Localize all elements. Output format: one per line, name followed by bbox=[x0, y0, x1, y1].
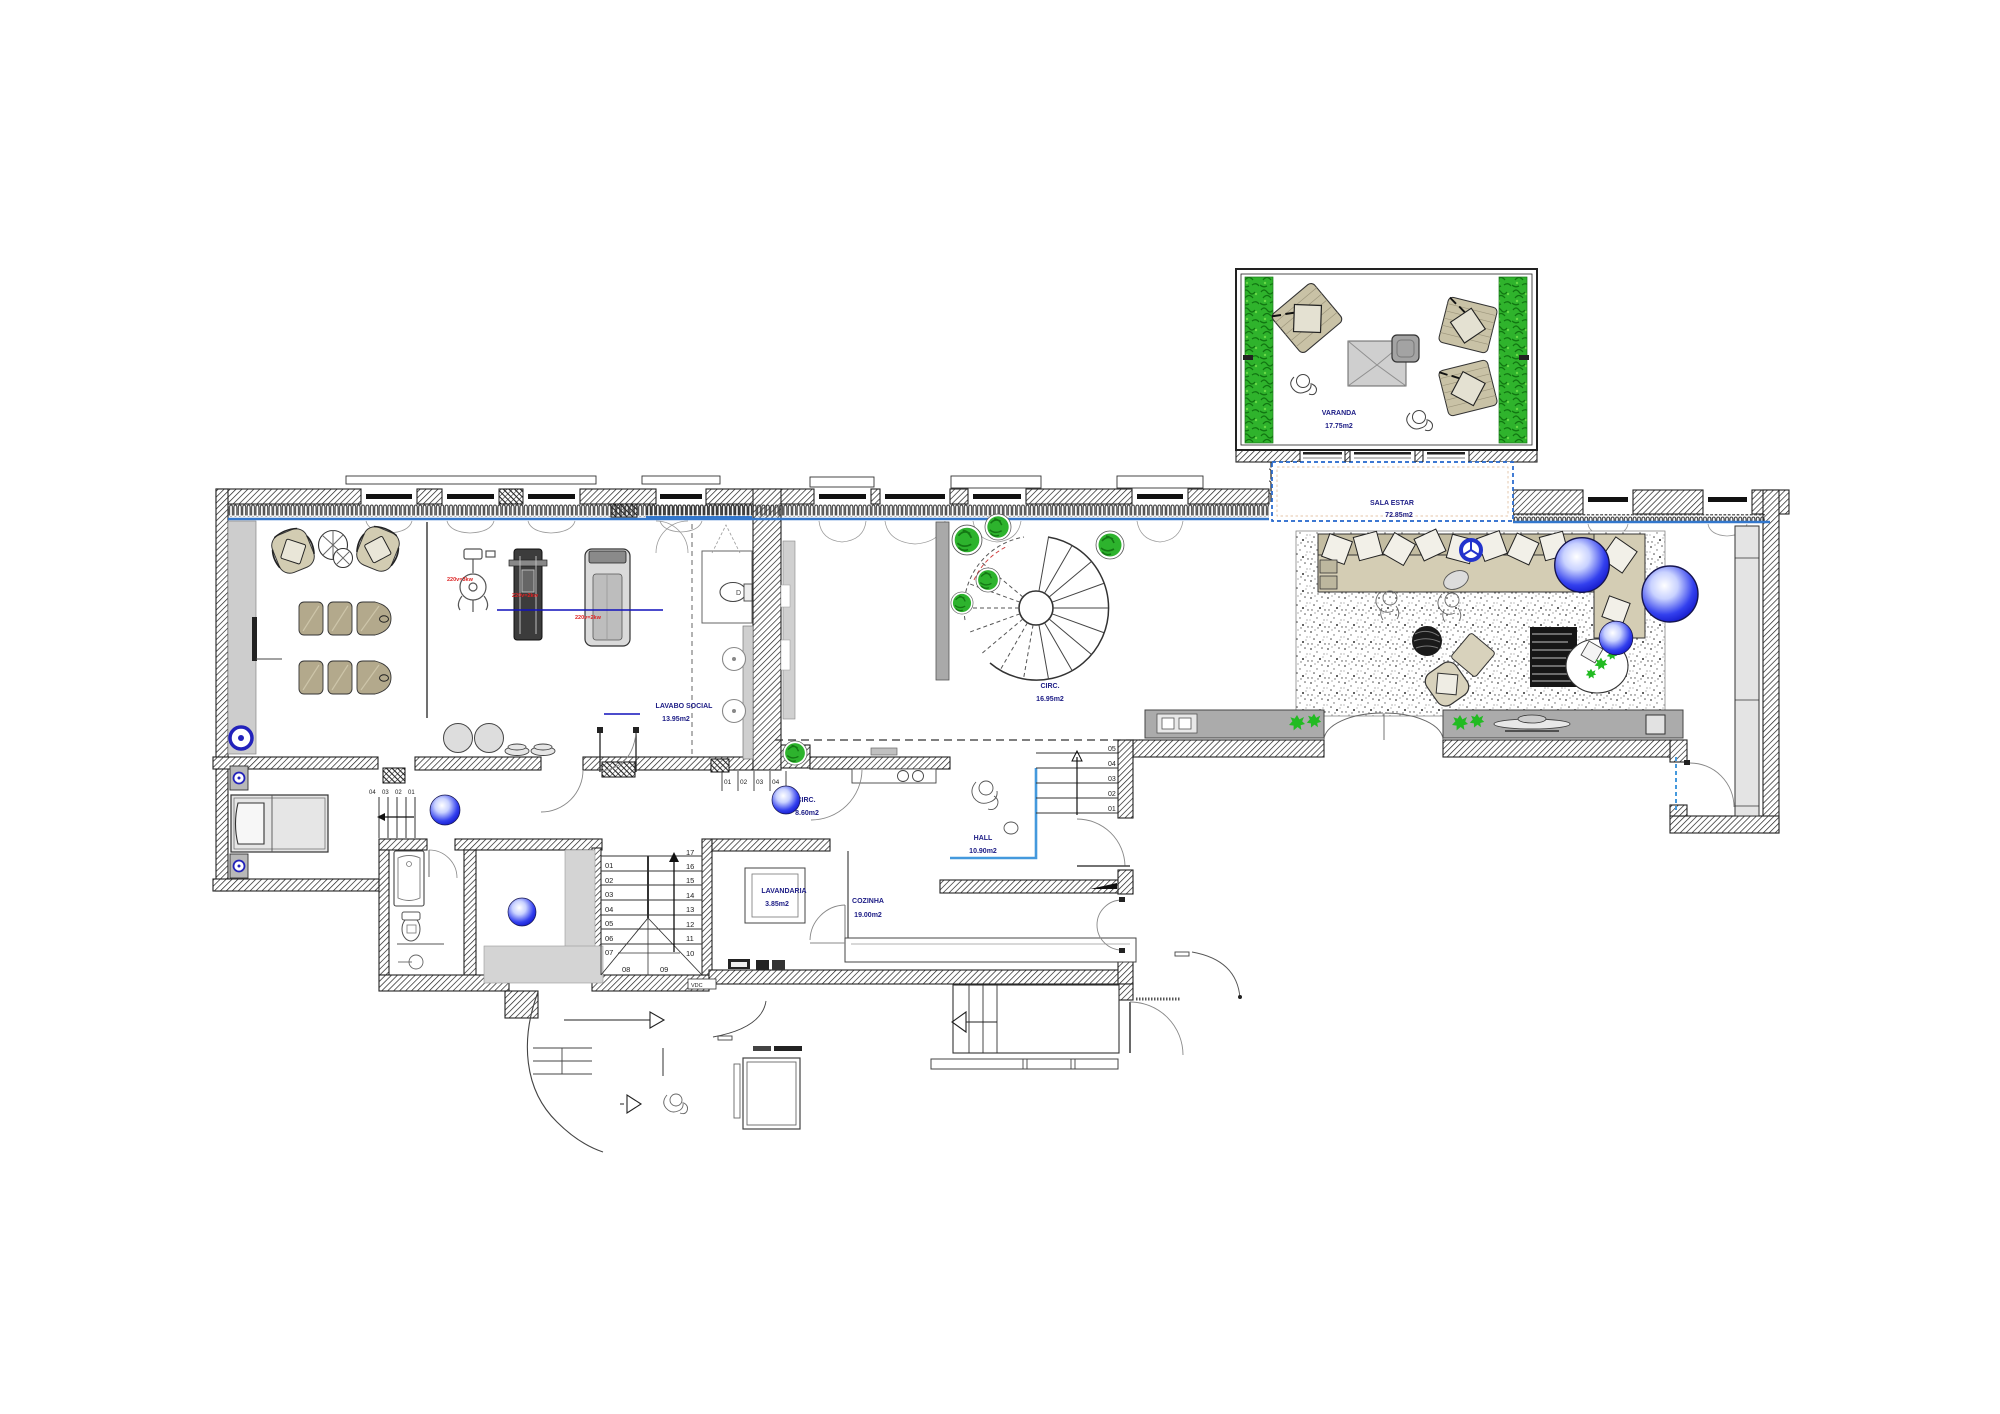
svg-text:06: 06 bbox=[605, 934, 613, 943]
svg-text:03: 03 bbox=[1108, 776, 1116, 783]
svg-text:19.00m2: 19.00m2 bbox=[854, 912, 882, 919]
svg-text:04: 04 bbox=[605, 905, 613, 914]
svg-text:72.85m2: 72.85m2 bbox=[1385, 512, 1413, 519]
svg-text:03: 03 bbox=[382, 790, 389, 796]
svg-text:04: 04 bbox=[1108, 761, 1116, 768]
svg-text:220v=2kw: 220v=2kw bbox=[512, 593, 539, 599]
svg-text:8.60m2: 8.60m2 bbox=[795, 810, 819, 817]
svg-text:16.95m2: 16.95m2 bbox=[1036, 696, 1064, 703]
svg-text:VARANDA: VARANDA bbox=[1322, 410, 1356, 417]
svg-text:02: 02 bbox=[1108, 791, 1116, 798]
svg-text:03: 03 bbox=[605, 890, 613, 899]
svg-text:CIRC.: CIRC. bbox=[1040, 683, 1059, 690]
svg-text:05: 05 bbox=[605, 919, 613, 928]
svg-text:16: 16 bbox=[686, 862, 694, 871]
svg-text:15: 15 bbox=[686, 876, 694, 885]
svg-text:LAVABO SOCIAL: LAVABO SOCIAL bbox=[656, 703, 714, 710]
svg-text:13.95m2: 13.95m2 bbox=[662, 716, 690, 723]
svg-text:HALL: HALL bbox=[974, 835, 993, 842]
svg-text:01: 01 bbox=[605, 861, 613, 870]
svg-text:12: 12 bbox=[686, 920, 694, 929]
svg-text:01: 01 bbox=[408, 790, 415, 796]
svg-text:04: 04 bbox=[772, 779, 780, 786]
svg-text:D: D bbox=[736, 590, 741, 597]
svg-text:08: 08 bbox=[622, 965, 630, 974]
svg-text:04: 04 bbox=[369, 790, 376, 796]
svg-text:11: 11 bbox=[686, 934, 694, 943]
svg-text:LAVANDARIA: LAVANDARIA bbox=[761, 888, 806, 895]
svg-text:3.85m2: 3.85m2 bbox=[765, 901, 789, 908]
svg-text:SALA ESTAR: SALA ESTAR bbox=[1370, 500, 1414, 507]
svg-text:03: 03 bbox=[756, 779, 764, 786]
svg-text:220v=3kw: 220v=3kw bbox=[447, 577, 474, 583]
svg-text:17: 17 bbox=[686, 848, 694, 857]
svg-text:220v=2kw: 220v=2kw bbox=[575, 615, 602, 621]
svg-text:02: 02 bbox=[605, 876, 613, 885]
svg-text:07: 07 bbox=[605, 948, 613, 957]
svg-text:COZINHA: COZINHA bbox=[852, 898, 884, 905]
svg-text:01: 01 bbox=[724, 779, 732, 786]
svg-text:17.75m2: 17.75m2 bbox=[1325, 423, 1353, 430]
svg-text:01: 01 bbox=[1108, 806, 1116, 813]
svg-text:05: 05 bbox=[1108, 746, 1116, 753]
svg-text:14: 14 bbox=[686, 891, 694, 900]
svg-text:10: 10 bbox=[686, 949, 694, 958]
svg-text:VDC: VDC bbox=[691, 983, 703, 989]
svg-text:13: 13 bbox=[686, 905, 694, 914]
svg-text:09: 09 bbox=[660, 965, 668, 974]
svg-text:02: 02 bbox=[740, 779, 748, 786]
svg-text:10.90m2: 10.90m2 bbox=[969, 848, 997, 855]
svg-text:02: 02 bbox=[395, 790, 402, 796]
